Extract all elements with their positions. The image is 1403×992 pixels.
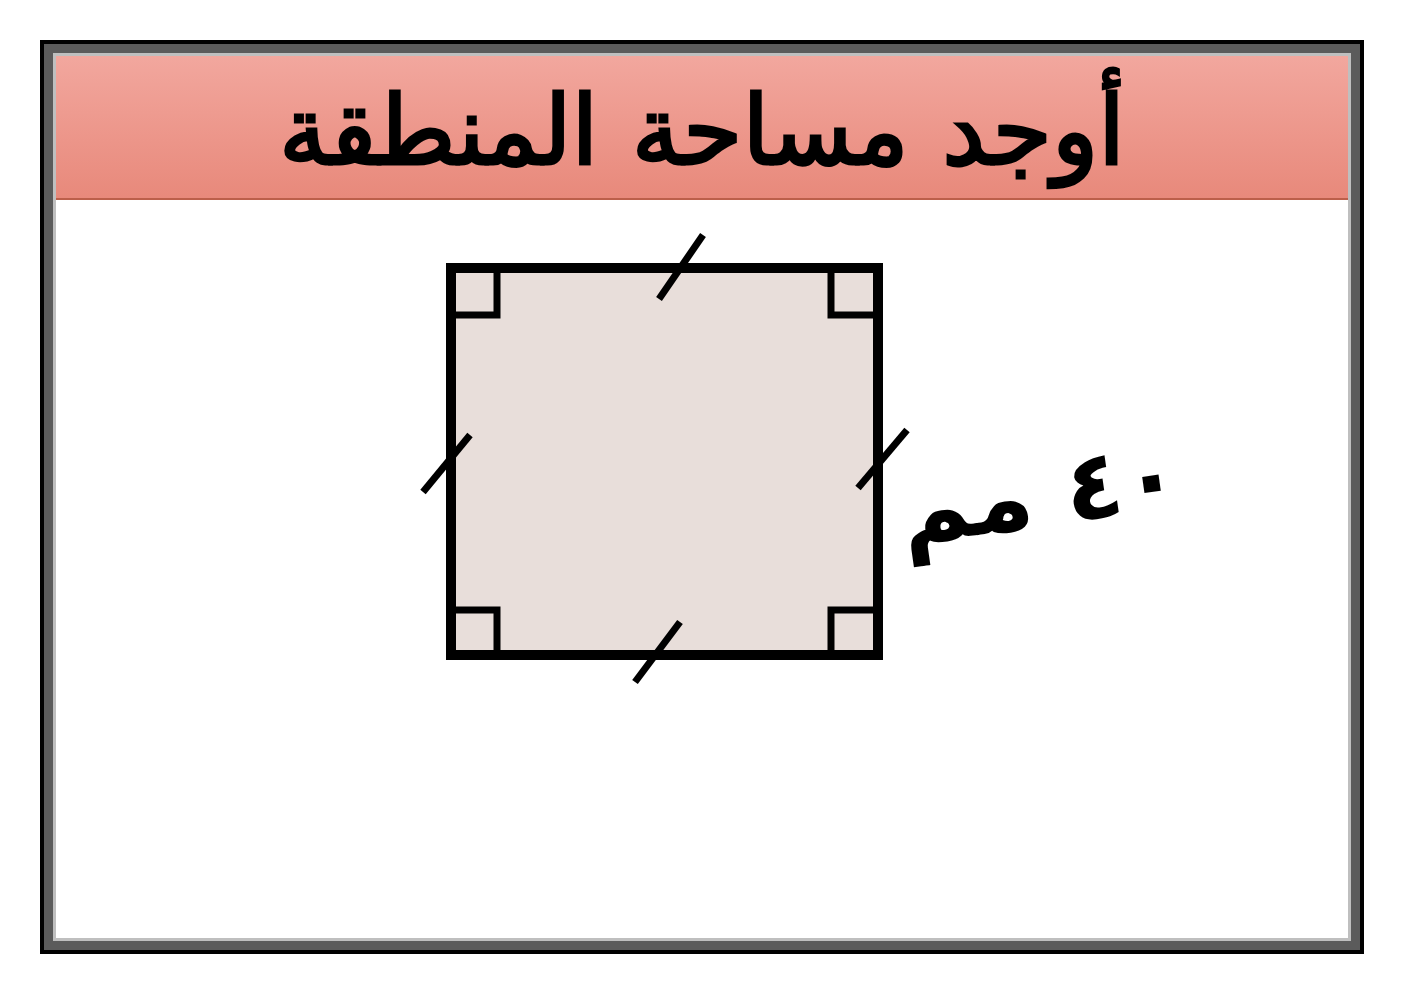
slide-frame-band: أوجد مساحة المنطقة <box>44 44 1360 950</box>
side-length-label: ٤٠ مم <box>892 419 1187 568</box>
slide-content: أوجد مساحة المنطقة <box>56 56 1348 938</box>
slide-outer-frame: أوجد مساحة المنطقة <box>40 40 1364 954</box>
geometry-diagram: ٤٠ مم <box>56 56 1348 938</box>
slide: أوجد مساحة المنطقة <box>0 0 1403 992</box>
square-shape <box>451 268 878 655</box>
slide-frame-inner-line: أوجد مساحة المنطقة <box>53 53 1351 941</box>
